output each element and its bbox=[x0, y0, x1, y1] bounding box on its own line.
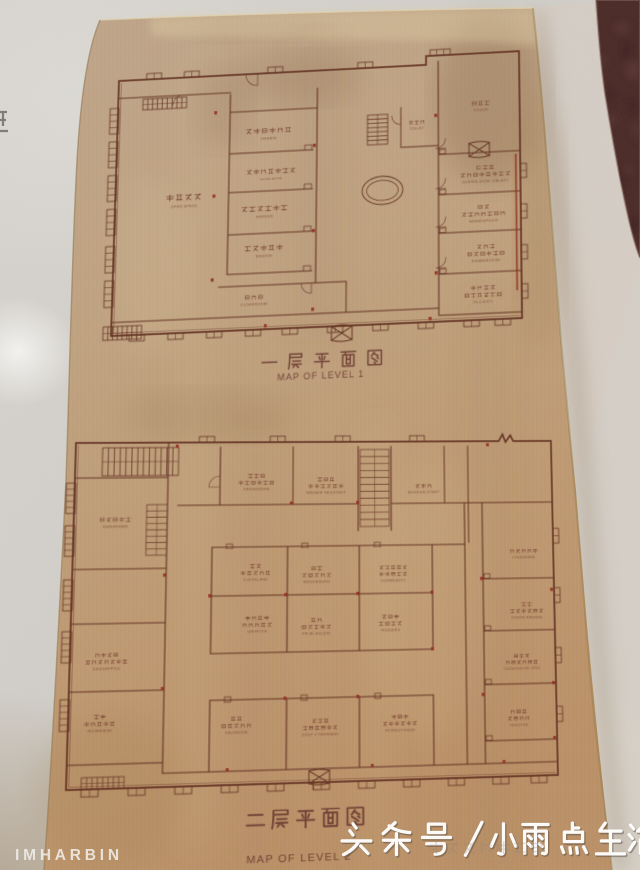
svg-text:IMHARBIN: IMHARBIN bbox=[15, 847, 123, 864]
